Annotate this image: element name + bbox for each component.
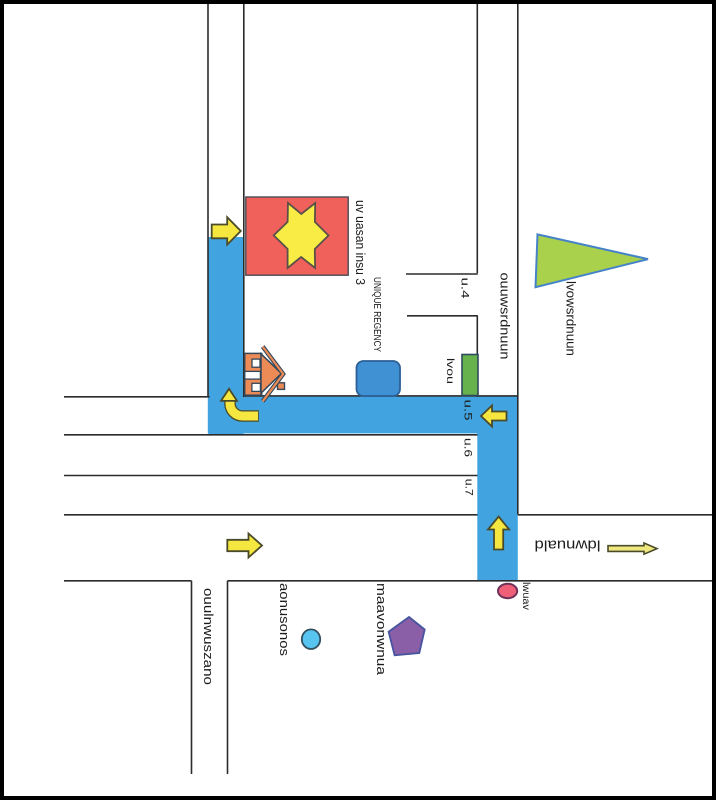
svg-text:aonusonos: aonusonos xyxy=(277,583,292,657)
svg-text:ouuwsrdnuun: ouuwsrdnuun xyxy=(498,273,513,360)
svg-text:u.4: u.4 xyxy=(459,278,471,299)
svg-text:u.5: u.5 xyxy=(462,400,474,421)
svg-text:u.6: u.6 xyxy=(462,438,474,457)
svg-text:ldwnuald: ldwnuald xyxy=(535,537,601,554)
svg-text:UNIQUE REGENCY: UNIQUE REGENCY xyxy=(371,277,382,352)
svg-text:uv uasan insu 3: uv uasan insu 3 xyxy=(353,200,367,285)
svg-text:lvowsrdnuun: lvowsrdnuun xyxy=(564,281,579,356)
svg-text:ouulnwuszano: ouulnwuszano xyxy=(201,588,215,685)
svg-text:lwuav: lwuav xyxy=(520,582,532,611)
svg-text:u.7: u.7 xyxy=(463,479,475,496)
svg-text:lvou: lvou xyxy=(444,358,456,384)
svg-text:maavonwnua: maavonwnua xyxy=(374,583,389,676)
